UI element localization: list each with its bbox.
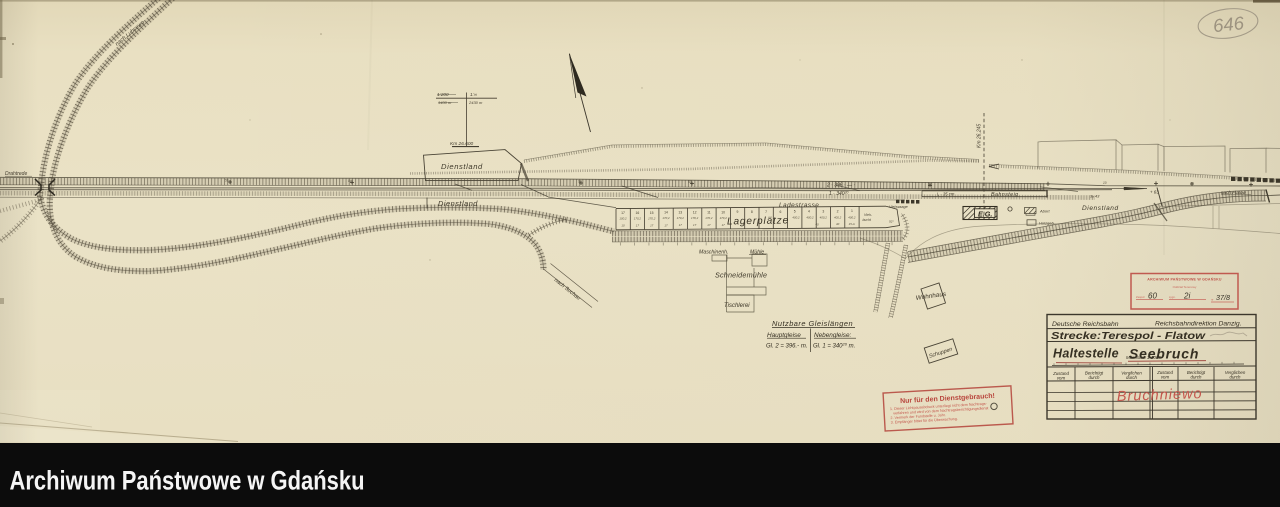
svg-text:17: 17: [722, 223, 726, 227]
svg-text:nr: nr: [1211, 298, 1214, 302]
svg-text:nach Flatow: nach Flatow: [1221, 190, 1246, 195]
svg-text:10: 10: [1103, 181, 1107, 185]
svg-text:bucht: bucht: [863, 218, 872, 222]
svg-text:Vieh-: Vieh-: [864, 213, 873, 217]
svg-text:durch: durch: [1089, 375, 1101, 380]
svg-text:17: 17: [636, 224, 640, 228]
svg-text:17: 17: [650, 223, 654, 227]
svg-text:Strecke:Terespol - Flatow: Strecke:Terespol - Flatow: [1051, 331, 1207, 342]
svg-text:5: 5: [794, 210, 796, 214]
svg-text:+ 63: + 63: [1150, 190, 1159, 195]
svg-text:14: 14: [664, 211, 668, 215]
svg-text:12: 12: [693, 211, 697, 215]
svg-text:3a 43: 3a 43: [1090, 193, 1100, 198]
svg-text:4: 4: [808, 210, 810, 214]
svg-text:10: 10: [721, 210, 725, 214]
svg-text:9: 9: [737, 210, 739, 214]
svg-text:Haltestelle: Haltestelle: [1053, 347, 1119, 361]
svg-text:Bruchniewo: Bruchniewo: [1117, 386, 1203, 405]
svg-text:Oddział Terenowy: Oddział Terenowy: [1173, 285, 1197, 289]
svg-text:L · 35 cm: L · 35 cm: [937, 192, 955, 197]
svg-text:Massstab 1:1000: Massstab 1:1000: [1126, 355, 1161, 360]
svg-text:11: 11: [707, 210, 711, 214]
svg-text:40: 40: [815, 222, 819, 226]
svg-text:52°: 52°: [889, 220, 894, 224]
svg-text:ARCHIWUM PAŃSTWOWE W GDAŃSKU: ARCHIWUM PAŃSTWOWE W GDAŃSKU: [1147, 277, 1222, 282]
svg-text:170,2: 170,2: [648, 216, 656, 220]
svg-text:Schneidemühle: Schneidemühle: [715, 271, 767, 280]
svg-text:2430 m: 2430 m: [468, 100, 483, 105]
svg-text:Nutzbare Gleislängen: Nutzbare Gleislängen: [772, 319, 853, 328]
svg-text:Archiwum Państwowe w Gdańsku: Archiwum Państwowe w Gdańsku: [10, 466, 365, 496]
svg-text:Bahnsteig: Bahnsteig: [991, 192, 1019, 198]
svg-text:15: 15: [650, 211, 654, 215]
svg-text:2 · 396 · — ·: 2 · 396 · — ·: [826, 183, 855, 189]
svg-text:2: 2: [837, 209, 839, 213]
svg-text:170,2: 170,2: [662, 216, 670, 220]
svg-text:17: 17: [621, 211, 625, 215]
svg-text:10: 10: [621, 224, 625, 228]
svg-text:646: 646: [1212, 12, 1246, 36]
svg-text:1: 1: [851, 209, 853, 213]
svg-text:Tischlerei: Tischlerei: [724, 303, 750, 309]
svg-text:1:∞: 1:∞: [470, 92, 477, 97]
svg-text:sygn.: sygn.: [1169, 295, 1176, 299]
svg-text:Abort: Abort: [1039, 208, 1050, 213]
svg-text:E.G.: E.G.: [978, 209, 992, 218]
svg-text:170,2: 170,2: [634, 216, 642, 220]
svg-text:Km 26.600: Km 26.600: [450, 141, 474, 147]
svg-text:100,2: 100,2: [619, 217, 627, 221]
svg-text:8: 8: [751, 210, 753, 214]
svg-text:Maschinenh.: Maschinenh.: [699, 250, 728, 256]
svg-text:6: 6: [779, 210, 781, 214]
svg-text:40: 40: [836, 222, 840, 226]
svg-text:Dienstland: Dienstland: [1082, 205, 1119, 212]
svg-text:Viehwaage: Viehwaage: [889, 205, 908, 209]
svg-text:17: 17: [693, 223, 697, 227]
svg-text:Ladestrasse: Ladestrasse: [779, 202, 819, 209]
svg-text:400,2: 400,2: [848, 215, 856, 219]
svg-text:durch: durch: [1230, 374, 1242, 379]
svg-text:Dienstland: Dienstland: [441, 162, 483, 171]
svg-text:13: 13: [678, 211, 682, 215]
svg-text:170,2: 170,2: [705, 216, 713, 220]
svg-text:2i: 2i: [1183, 292, 1190, 301]
svg-text:Lagerplätze: Lagerplätze: [727, 215, 789, 227]
svg-text:3: 3: [822, 209, 824, 213]
svg-text:Gl. 2 = 396.- m.: Gl. 2 = 396.- m.: [766, 344, 808, 350]
svg-text:17: 17: [679, 223, 683, 227]
svg-text:durch: durch: [1126, 375, 1138, 380]
svg-text:durch: durch: [1191, 375, 1203, 380]
svg-text:Reichsbahndirektion Danzig.: Reichsbahndirektion Danzig.: [1155, 321, 1242, 328]
svg-text:Gl. 1 = 34020 m.: Gl. 1 = 34020 m.: [813, 342, 855, 350]
svg-text:vom: vom: [1057, 375, 1066, 380]
svg-text:Km 26,245: Km 26,245: [977, 124, 983, 148]
svg-text:Deutsche Reichsbahn: Deutsche Reichsbahn: [1052, 321, 1119, 328]
svg-text:Zespół: Zespół: [1136, 295, 1145, 299]
svg-text:170,2: 170,2: [691, 216, 699, 220]
svg-text:7: 7: [765, 210, 767, 214]
svg-text:400,2: 400,2: [806, 216, 814, 220]
svg-text:17: 17: [707, 223, 711, 227]
svg-text:Holzgeb.: Holzgeb.: [1039, 221, 1055, 226]
svg-text:16: 16: [636, 211, 640, 215]
svg-text:vom: vom: [1161, 375, 1170, 380]
svg-text:400,2: 400,2: [792, 216, 800, 220]
svg-text:400,2: 400,2: [820, 215, 828, 219]
svg-text:17: 17: [664, 223, 668, 227]
svg-text:170,2: 170,2: [677, 216, 685, 220]
svg-text:15-m: 15-m: [849, 222, 856, 226]
svg-text:Dienstland: Dienstland: [438, 199, 478, 208]
svg-text:400,2: 400,2: [834, 215, 842, 219]
svg-text:37/8: 37/8: [1216, 293, 1230, 302]
svg-text:60: 60: [1148, 292, 1157, 301]
